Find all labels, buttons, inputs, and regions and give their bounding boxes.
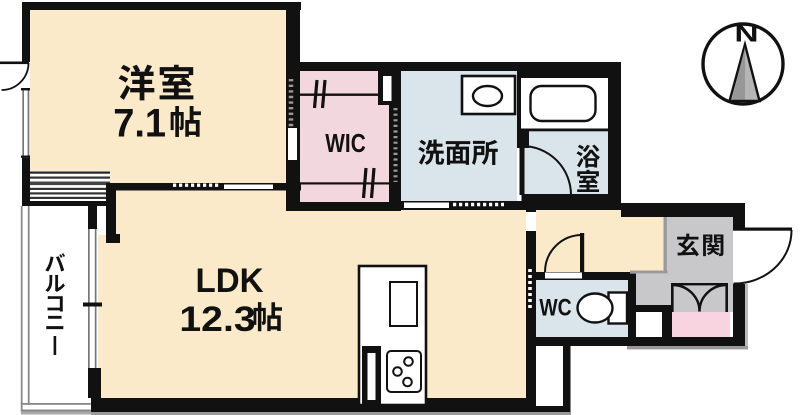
svg-text:12.3: 12.3 xyxy=(179,299,255,339)
svg-text:WIC: WIC xyxy=(325,129,365,158)
svg-text:LDK: LDK xyxy=(195,261,264,300)
svg-text:7.1: 7.1 xyxy=(113,102,166,146)
svg-text:WC: WC xyxy=(539,293,571,321)
